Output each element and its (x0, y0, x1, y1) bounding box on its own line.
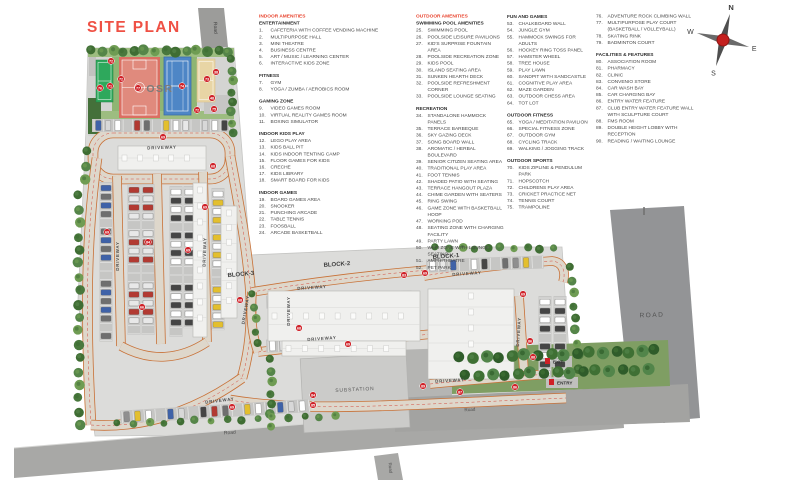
tree-highlight (333, 413, 336, 416)
plan-marker: 85 (310, 402, 317, 409)
tree-highlight (225, 49, 229, 53)
legend-item-label: MULTIPURPOSE HALL (271, 34, 410, 41)
car (171, 259, 181, 265)
legend-item-number: 62. (507, 87, 519, 94)
legend-item-label: WI-FI ZONE WITH LOUNGE SEATING (428, 244, 506, 257)
legend-item-label: CONVENIO STORE (608, 78, 704, 85)
legend-item-number: 43. (416, 185, 428, 192)
tree-highlight (229, 121, 233, 125)
legend-item-label: SANDPIT WITH SANDCASTLE (519, 73, 594, 80)
tree-highlight (75, 327, 79, 331)
site-plan-page: SITE PLAN (0, 0, 800, 480)
legend-item-number: 89. (596, 125, 608, 138)
car (129, 213, 139, 219)
driveway-label: DRIVEWAY (201, 237, 207, 267)
car (129, 196, 139, 202)
building-unit (227, 297, 232, 303)
plan-marker: 69 (185, 247, 192, 254)
car (244, 404, 250, 414)
car (129, 318, 139, 324)
legend-item: 78.SKATING RINK (596, 33, 703, 40)
tree-highlight (111, 47, 115, 51)
car (178, 408, 184, 418)
legend-item: 43.TERRACE HANGOUT PLAZA (416, 185, 505, 192)
legend-item: 18.SMART BOARD FOR KIDS (259, 177, 409, 184)
tree-highlight (585, 348, 590, 353)
compass-n-label: N (728, 3, 733, 12)
parking-column (142, 184, 155, 335)
legend-item-label: MAZE GARDEN (519, 87, 594, 94)
tree-highlight (269, 379, 273, 383)
car (96, 121, 102, 131)
legend-item-label: MULTIPURPOSE PLAY COURT (BASKETBALL / VO… (608, 20, 704, 33)
legend-item-number: 29. (416, 60, 428, 67)
plan-marker: 74 (179, 83, 186, 90)
car (105, 121, 111, 131)
car (143, 318, 153, 324)
tree-highlight (251, 305, 254, 308)
legend-item-label: PARTY LAWN (428, 238, 506, 245)
legend-item: 31.SUNKEN HEARTH DECK (416, 73, 505, 80)
car (540, 317, 550, 323)
tree-highlight (461, 371, 466, 376)
legend-item-label: TERRACE HANGOUT PLAZA (428, 185, 506, 192)
legend-item-number: 4. (259, 47, 271, 54)
car (540, 344, 550, 350)
legend-item-label: KIDS POOL (428, 60, 506, 67)
plan-marker-number: 68 (238, 298, 242, 302)
car (129, 257, 139, 263)
legend-item-number: 48. (416, 225, 428, 238)
car (171, 250, 181, 256)
tree-highlight (573, 315, 577, 319)
legend-item: 24.ARCADE BASKETBALL (259, 229, 409, 236)
tree-highlight (490, 371, 495, 376)
tree-highlight (75, 192, 79, 196)
legend-item: 90.READING / WAITING LOUNGE (596, 138, 703, 145)
car (129, 283, 139, 289)
car (129, 292, 139, 298)
tree-highlight (631, 367, 636, 372)
tree-highlight (162, 421, 165, 424)
tree-highlight (511, 246, 514, 249)
legend-item: 13.KIDS BALL PIT (259, 144, 409, 151)
car (171, 198, 181, 204)
legend-item-label: OUTDOOR GYM (519, 132, 594, 139)
building-unit (198, 187, 203, 193)
driveway-label: DRIVEWAY (286, 296, 291, 325)
car (143, 213, 153, 219)
legend-item-number: 88. (596, 118, 608, 125)
plan-marker-number: 72 (119, 77, 123, 81)
legend-item: 65.YOGA / MEDITATION PAVILION (507, 119, 593, 126)
tree-highlight (537, 247, 540, 250)
car (171, 207, 181, 213)
car (129, 187, 139, 193)
legend-item-number: 79. (596, 39, 608, 46)
car (540, 308, 550, 314)
car (129, 300, 139, 306)
legend-item-label: READING / WAITING LOUNGE (608, 138, 704, 145)
plan-marker: 71 (107, 83, 114, 90)
plan-marker-number: 69 (203, 205, 207, 209)
legend-item: 39.SENIOR CITIZEN SEATING AREA (416, 159, 505, 166)
legend-item: 85.CAR CHARGING BAY (596, 92, 703, 99)
building-unit (304, 313, 309, 319)
tree-highlight (178, 419, 181, 422)
building-unit (335, 313, 340, 319)
plan-marker: 86 (527, 338, 534, 345)
tree-highlight (230, 78, 234, 82)
tree-highlight (204, 48, 208, 52)
parking-row (92, 119, 231, 132)
legend-item: 36.SKY GAZING DECK (416, 132, 505, 139)
road-south-label-2: Road (464, 407, 476, 413)
legend-item-number: 8. (259, 86, 271, 93)
tree-highlight (555, 368, 560, 373)
legend-item-label: DOUBLE HEIGHT LOBBY WITH RECEPTION (608, 125, 704, 138)
plan-marker: 69 (345, 341, 352, 348)
legend-item: 71.HOPSCOTCH (507, 178, 593, 185)
legend-item-label: CLUB ENTRY WATER FEATURE WALL WITH SCULP… (608, 105, 704, 118)
tree-highlight (254, 316, 257, 319)
car (143, 187, 153, 193)
legend-item-label: CRICKET PRACTICE NET (519, 191, 594, 198)
car (200, 407, 206, 417)
car (143, 196, 153, 202)
car (143, 292, 153, 298)
legend-item-number: 49. (416, 238, 428, 245)
tree-highlight (569, 278, 573, 282)
building-unit (382, 313, 387, 319)
plan-marker: 69 (229, 404, 236, 411)
tree-highlight (172, 49, 176, 53)
tree-highlight (192, 417, 195, 420)
tree-highlight (567, 264, 571, 268)
legend-item: 6.INTERACTIVE KIDS ZONE (259, 60, 409, 67)
legend-item: 56.HOCKEY RING TOSS PANEL (507, 47, 593, 54)
parking-column (170, 186, 183, 337)
tree-highlight (77, 422, 81, 426)
legend-item: 17.KIDS LIBRARY (259, 171, 409, 178)
parking-column (128, 184, 141, 335)
car (101, 211, 111, 217)
legend-item: 49.PARTY LAWN (416, 238, 505, 245)
car (555, 308, 565, 314)
tree-highlight (645, 365, 650, 370)
tree-highlight (520, 351, 525, 356)
car (101, 185, 111, 191)
tree-highlight (99, 48, 103, 52)
legend-item: 2.MULTIPURPOSE HALL (259, 34, 409, 41)
legend-item-label: KIDS ZIPLINE & PENDULUM PARK (519, 165, 594, 178)
plan-marker: 73 (204, 76, 211, 83)
legend-column: FUN AND GAMES53.CHALKBOARD WALL54.JUNGLE… (507, 13, 593, 211)
plan-marker: 77 (135, 85, 142, 92)
legend-red-header: INDOOR AMENITIES (259, 13, 409, 20)
tree-highlight (560, 351, 565, 356)
legend-item-label: SKY GAZING DECK (428, 132, 506, 139)
building-unit (169, 155, 174, 161)
car (129, 309, 139, 315)
legend-item-number: 52. (416, 264, 428, 271)
legend-item-label: POOLSIDE REFRESHMENT CORNER (428, 80, 506, 93)
car (211, 406, 217, 416)
legend-item-number: 6. (259, 60, 271, 67)
building-unit (367, 313, 372, 319)
legend-item-number: 34. (416, 112, 428, 125)
car (144, 121, 150, 131)
legend-item-label: CHALKBOARD WALL (519, 21, 594, 28)
building-unit (184, 155, 189, 161)
tree-highlight (249, 291, 252, 294)
plan-marker: 68 (237, 297, 244, 304)
legend-item: 33.POOLSIDE LOUNGE SEATING (416, 93, 505, 100)
legend-item-number: 39. (416, 159, 428, 166)
legend-section-heading: INDOOR KIDS PLAY (259, 131, 409, 138)
plan-marker-number: 72 (109, 59, 113, 63)
plan-marker: 84 (310, 392, 317, 399)
legend-item: 20.SNOOKER (259, 203, 409, 210)
legend-item: 32.POOLSIDE REFRESHMENT CORNER (416, 80, 505, 93)
tree-highlight (77, 219, 81, 223)
tree-highlight (75, 259, 79, 263)
tree-highlight (268, 391, 272, 395)
car (255, 404, 261, 414)
car (173, 121, 179, 131)
car (129, 231, 139, 237)
tree-highlight (574, 350, 579, 355)
car (171, 311, 181, 317)
car (101, 255, 111, 261)
driveway-band (157, 174, 161, 344)
tree-highlight (193, 47, 197, 51)
legend-item: 7.GYM (259, 79, 409, 86)
driveway-label: DRIVEWAY (115, 241, 120, 270)
legend-item: 64.TOT LOT (507, 100, 593, 107)
plan-marker-number: 77 (136, 86, 140, 90)
osr-pad (89, 57, 96, 76)
car (288, 401, 294, 411)
tree-highlight (83, 164, 87, 168)
plan-marker: 68 (210, 163, 217, 170)
legend-item-number: 73. (507, 191, 519, 198)
legend-item-label: TREE HOUSE (519, 60, 594, 67)
legend-item-label: HOPSCOTCH (519, 178, 594, 185)
tree-highlight (82, 176, 86, 180)
car (213, 322, 223, 328)
building-unit (367, 346, 372, 352)
road-south-label: Road (224, 430, 237, 437)
building-unit (198, 315, 203, 321)
legend-item: 10.VIRTUAL REALITY GAMES ROOM (259, 112, 409, 119)
plan-marker-number: 83 (402, 273, 406, 277)
legend-item: 79.BADMINTON COURT (596, 39, 703, 46)
plan-marker: 48 (209, 95, 216, 102)
legend-item-number: 50. (416, 244, 428, 257)
car (213, 191, 223, 197)
legend-item-number: 18. (259, 177, 271, 184)
legend-item: 81.PHARMACY (596, 65, 703, 72)
tree-highlight (639, 347, 644, 352)
legend-item: 88.FMS ROOM (596, 118, 703, 125)
legend-item: 58.TREE HOUSE (507, 60, 593, 67)
tree-highlight (625, 349, 630, 354)
road-east-label: ROAD (639, 312, 664, 320)
legend-item-label: KID'S SURPRISE FOUNTAIN AREA (428, 40, 506, 53)
legend-item-number: 90. (596, 138, 608, 145)
building-unit (351, 346, 356, 352)
plan-marker-number: 69 (161, 135, 165, 139)
legend-item: 11.BOXING SIMULATOR (259, 118, 409, 125)
car (134, 121, 140, 131)
plan-marker-number: 69 (521, 292, 525, 296)
legend-item: 26.POOLSIDE LEISURE PAVILIONS (416, 34, 505, 41)
parking-column (539, 296, 552, 379)
tree-highlight (286, 416, 289, 419)
legend-item-number: 36. (416, 132, 428, 139)
legend-section-heading: INDOOR GAMES (259, 189, 409, 196)
legend-item: 60.SANDPIT WITH SANDCASTLE (507, 73, 593, 80)
legend-item: 41.FOOT TENNIS (416, 172, 505, 179)
plan-marker-number: 69 (346, 342, 350, 346)
building-unit (198, 283, 203, 289)
legend-section-heading: OUTDOOR SPORTS (507, 158, 593, 165)
plan-marker: 76 (97, 85, 104, 92)
plan-marker: 69 (104, 229, 111, 236)
tree-highlight (216, 47, 220, 51)
building-unit (469, 325, 474, 331)
tree-highlight (131, 48, 135, 52)
building-unit (469, 293, 474, 299)
tree-highlight (76, 275, 80, 279)
legend-item: 87.CLUB ENTRY WATER FEATURE WALL WITH SC… (596, 105, 703, 118)
building-unit (319, 313, 324, 319)
tree-highlight (229, 90, 233, 94)
car (212, 121, 218, 131)
tree-highlight (548, 350, 553, 355)
tree-highlight (76, 207, 80, 211)
legend-item: 27.KID'S SURPRISE FOUNTAIN AREA (416, 40, 505, 53)
legend-column: OUTDOOR AMENITIESSWIMMING POOL AMENITIES… (416, 13, 505, 271)
tree-highlight (526, 369, 531, 374)
legend-item: 52.PET PARK (416, 264, 505, 271)
compass-s-label: S (711, 71, 716, 78)
legend-section-heading: FITNESS (259, 72, 409, 79)
legend-item-label: SEATING ZONE WITH CHARGING FACILITY (428, 225, 506, 238)
tree-highlight (88, 47, 92, 51)
legend-item-label: CAR CHARGING BAY (608, 92, 704, 99)
legend-item: 55.HAMMOCK SWINGS FOR ADULTS (507, 34, 593, 47)
tree-highlight (228, 109, 232, 113)
plan-marker-number: 76 (98, 86, 102, 90)
legend-item: 38.AROMATIC / HERBAL BOULEVARD (416, 145, 505, 158)
car (171, 215, 181, 221)
legend-item-label: STANDALONE HAMMOCK PANELS (428, 112, 506, 125)
tree-highlight (77, 354, 81, 358)
building-unit (272, 313, 277, 319)
tree-highlight (253, 330, 256, 333)
building-unit (122, 155, 127, 161)
legend-item-label: SENIOR CITIZEN SEATING AREA (428, 159, 506, 166)
tree-highlight (455, 353, 460, 358)
tree-highlight (469, 354, 474, 359)
plan-marker: 66 (139, 304, 146, 311)
legend-item-number: 56. (507, 47, 519, 54)
tree-highlight (131, 422, 134, 425)
car (129, 240, 139, 246)
legend-item-number: 78. (596, 33, 608, 40)
plan-marker: 69 (520, 291, 527, 298)
plan-marker: 86 (512, 384, 519, 391)
tree-highlight (77, 247, 81, 251)
legend-red-header: OUTDOOR AMENITIES (416, 13, 505, 20)
legend-item: 4.BUSINESS CENTRE (259, 47, 409, 54)
legend-item-number: 38. (416, 145, 428, 158)
legend-item: 67.OUTDOOR GYM (507, 132, 593, 139)
legend-item-label: HOCKEY RING TOSS PANEL (519, 47, 594, 54)
legend-section-heading: ENTERTAINMENT (259, 20, 409, 27)
car (129, 205, 139, 211)
legend-item-number: 20. (259, 203, 271, 210)
legend-item-number: 33. (416, 93, 428, 100)
plan-marker-number: 69 (423, 271, 427, 275)
legend-item-label: KIDS LIBRARY (271, 171, 410, 178)
legend-item-number: 55. (507, 34, 519, 47)
building-unit (302, 346, 307, 352)
legend-item-label: WALKING / JOGGING TRACK (519, 145, 594, 152)
plan-marker-number: 68 (211, 164, 215, 168)
car (277, 402, 283, 412)
legend-item-label: KIDS BALL PIT (271, 144, 410, 151)
legend-item-number: 81. (596, 65, 608, 72)
tree-highlight (540, 370, 545, 375)
legend-item: 15.FLOOR GAMES FOR KIDS (259, 157, 409, 164)
car (270, 341, 276, 351)
car (555, 317, 565, 323)
legend-item: 48.SEATING ZONE WITH CHARGING FACILITY (416, 225, 505, 238)
car (171, 320, 181, 326)
tree-highlight (605, 367, 610, 372)
plan-marker-number: 68 (297, 326, 301, 330)
legend-section-heading: OUTDOOR FITNESS (507, 112, 593, 119)
legend-section-heading: GAMING ZONE (259, 98, 409, 105)
legend-item-label: FOOT TENNIS (428, 172, 506, 179)
tree-highlight (268, 424, 272, 428)
plan-marker-number: 66 (140, 305, 144, 309)
plan-marker-number: 75 (212, 107, 216, 111)
plan-marker: 72 (118, 76, 125, 83)
legend-item-label: BUSINESS CENTRE (271, 47, 410, 54)
legend-item-label: YOGA / ZUMBA / AEROBICS ROOM (271, 86, 410, 93)
tree-highlight (650, 346, 655, 351)
car (171, 233, 181, 239)
tree-highlight (77, 287, 81, 291)
plan-marker-number: 69 (186, 248, 190, 252)
car (101, 246, 111, 252)
legend-item-number: 60. (507, 73, 519, 80)
tree-highlight (255, 340, 258, 343)
tree-highlight (209, 419, 212, 422)
tree-highlight (526, 245, 529, 248)
car (513, 258, 519, 268)
legend-item-number: 2. (259, 34, 271, 41)
tree-highlight (572, 327, 576, 331)
car (202, 121, 208, 131)
parking-strip (92, 119, 231, 132)
tree-highlight (599, 349, 604, 354)
building-unit (227, 254, 232, 260)
